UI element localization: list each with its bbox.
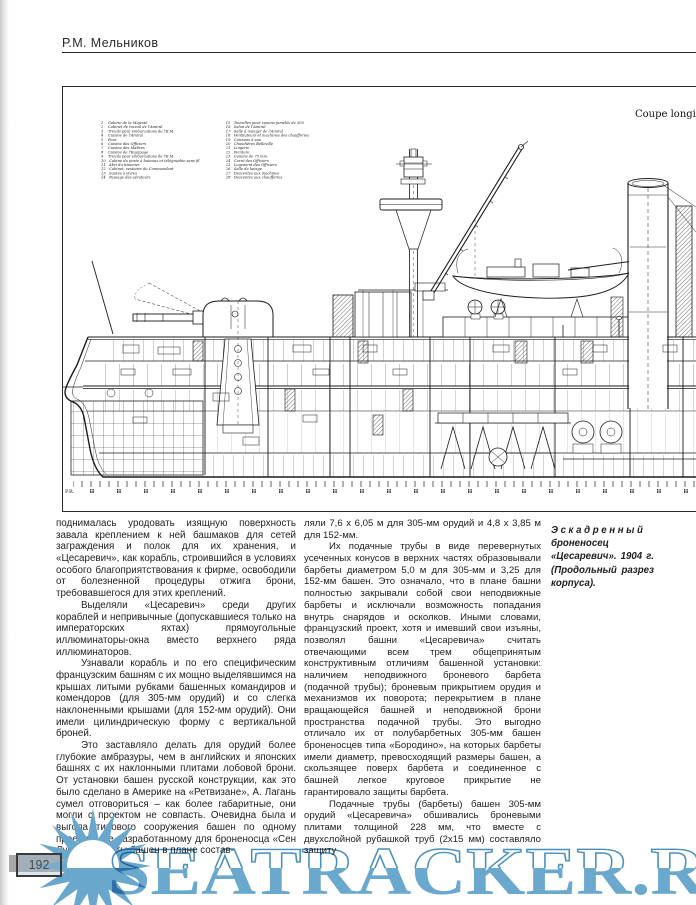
- paragraph: поднималась уродовать изящную поверхност…: [56, 518, 296, 600]
- pr-label: P.R.: [65, 489, 75, 495]
- legend-entry: 14 Passage des aérateurs: [101, 176, 200, 180]
- figure-caption: Эскадренный броненосец «Цесаревич». 1904…: [551, 524, 654, 590]
- page-number: 192: [16, 853, 62, 877]
- legend-column-1: 1 Galerie de la Majesté2 Cabinet de trav…: [101, 121, 200, 180]
- legend-entry: 28 Descentes aux chaufferies: [226, 176, 309, 180]
- caption-lead: Эскадренный: [551, 525, 646, 536]
- text-column-right: ляли 7,6 х 6,05 м для 305-мм орудий и 4,…: [304, 518, 541, 857]
- legend-column-2: 15 Tourelles pour canons jumelés de 3051…: [226, 121, 309, 180]
- paragraph: Узнавали корабль и по его специфическим …: [56, 658, 296, 740]
- header-rule: [62, 52, 696, 53]
- caption-rest: броненосец «Цесаревич». 1904 г. (Продоль…: [551, 538, 654, 589]
- paragraph: Их подачные трубы в виде перевернутых ус…: [304, 541, 541, 798]
- hull-framing: [71, 340, 696, 477]
- funnel: [628, 179, 668, 410]
- section-label: Coupe longitudinale: [635, 109, 696, 120]
- watermark-text: SEATRACKER.RU SEATRACKER.RU: [108, 837, 696, 905]
- paragraph: Выделяли «Цесаревич» среди других корабл…: [56, 600, 296, 658]
- drawing-legend: 1 Galerie de la Majesté2 Cabinet de trav…: [101, 121, 614, 180]
- scanned-book-page: Р.М. Мельников: [0, 0, 696, 905]
- frame-scale: P.R.: [65, 481, 696, 495]
- ship-drawing-figure: P.R. 1 Galerie de la Majesté2 Cabinet de…: [62, 86, 696, 512]
- paragraph: ляли 7,6 х 6,05 м для 305-мм орудий и 4,…: [304, 518, 541, 541]
- page-header: Р.М. Мельников: [62, 36, 158, 50]
- scan-edge-shadow: [0, 0, 9, 905]
